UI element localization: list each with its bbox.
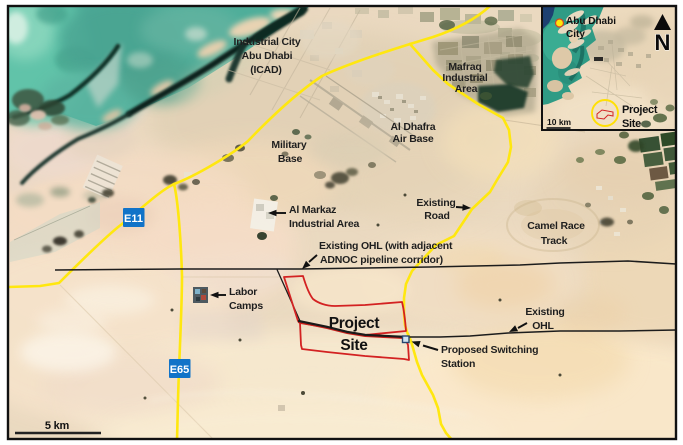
svg-text:Military: Military: [271, 139, 307, 151]
svg-text:5 km: 5 km: [45, 420, 70, 432]
svg-text:Base: Base: [278, 153, 303, 165]
svg-text:Labor: Labor: [229, 286, 257, 298]
svg-text:Camps: Camps: [229, 300, 263, 312]
svg-text:City: City: [566, 29, 585, 40]
svg-text:Al Markaz: Al Markaz: [289, 204, 336, 216]
svg-text:Existing: Existing: [525, 306, 564, 318]
svg-text:Project: Project: [622, 104, 658, 116]
svg-text:Site: Site: [622, 118, 641, 130]
svg-text:10 km: 10 km: [547, 117, 572, 127]
svg-text:Al Dhafra: Al Dhafra: [391, 121, 436, 133]
svg-text:Industrial Area: Industrial Area: [289, 218, 359, 230]
svg-text:Existing: Existing: [416, 197, 455, 209]
svg-text:ADNOC pipeline corridor): ADNOC pipeline corridor): [320, 254, 443, 266]
svg-text:Site: Site: [340, 337, 368, 354]
svg-text:Abu Dhabi: Abu Dhabi: [566, 16, 616, 27]
svg-text:N: N: [655, 30, 671, 55]
svg-text:OHL: OHL: [532, 320, 554, 332]
svg-text:Existing OHL (with adjacent: Existing OHL (with adjacent: [319, 240, 453, 252]
svg-text:Station: Station: [441, 358, 475, 370]
svg-text:E65: E65: [170, 364, 190, 376]
svg-text:Track: Track: [541, 235, 568, 247]
svg-text:Road: Road: [424, 210, 449, 222]
svg-text:Camel Race: Camel Race: [527, 220, 585, 232]
svg-text:Industrial City: Industrial City: [233, 36, 300, 48]
svg-text:(ICAD): (ICAD): [250, 64, 281, 76]
svg-text:E11: E11: [124, 213, 143, 225]
svg-text:Air Base: Air Base: [392, 133, 433, 145]
svg-text:Abu Dhabi: Abu Dhabi: [242, 50, 293, 62]
svg-text:Proposed Switching: Proposed Switching: [441, 344, 538, 356]
svg-text:Project: Project: [329, 315, 380, 332]
svg-text:Area: Area: [455, 83, 478, 95]
